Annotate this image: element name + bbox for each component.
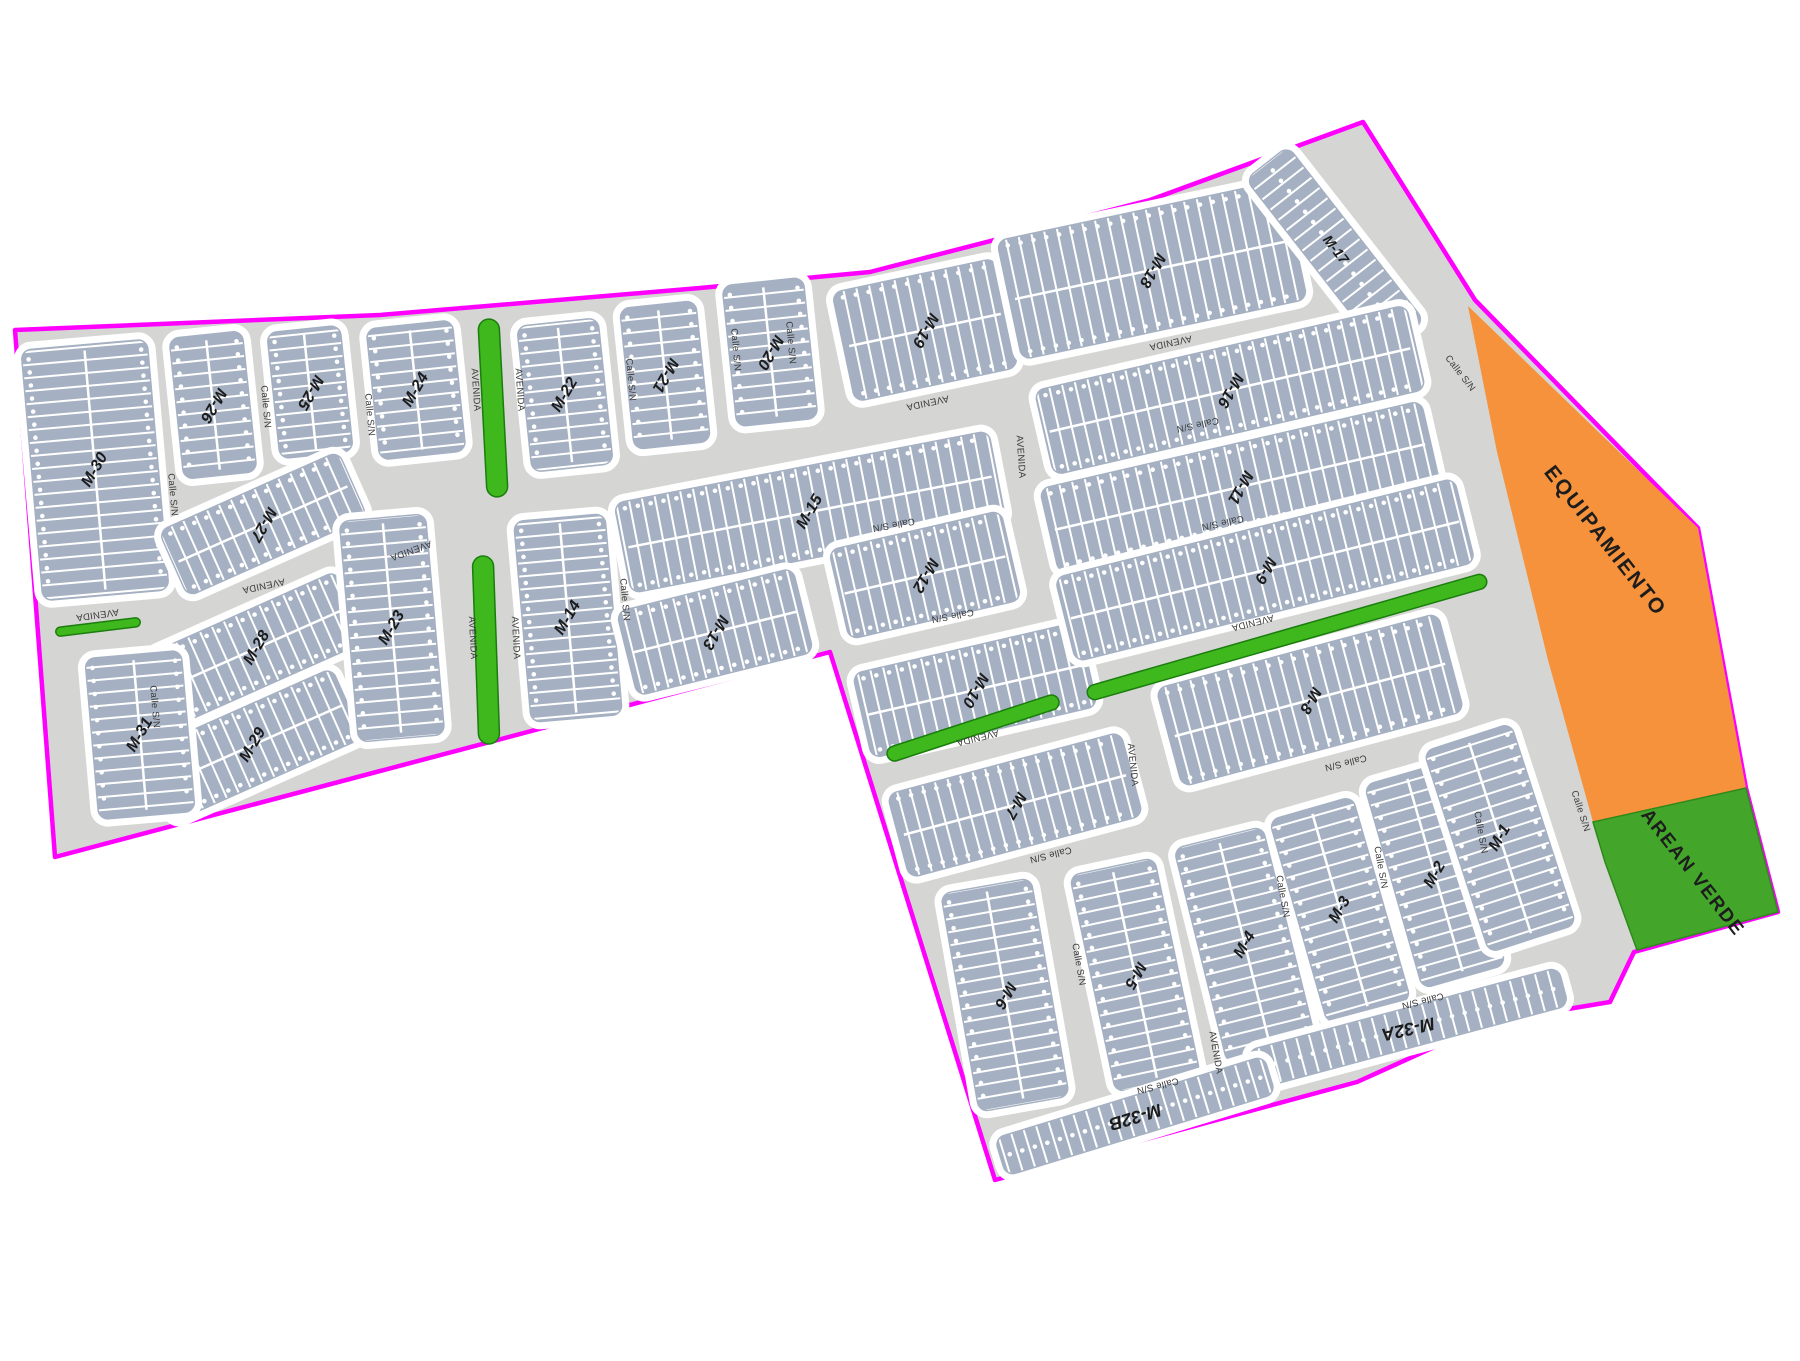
site-map: Calle S/NCalle S/NCalle S/NCalle S/NAVEN…: [0, 0, 1800, 1361]
street-label: AVENIDA: [509, 616, 522, 660]
lotization-plan: Calle S/NCalle S/NCalle S/NCalle S/NAVEN…: [0, 0, 1800, 1361]
street-label: AVENIDA: [466, 616, 479, 660]
generated-layers: Calle S/NCalle S/NCalle S/NCalle S/NAVEN…: [15, 122, 1778, 1181]
